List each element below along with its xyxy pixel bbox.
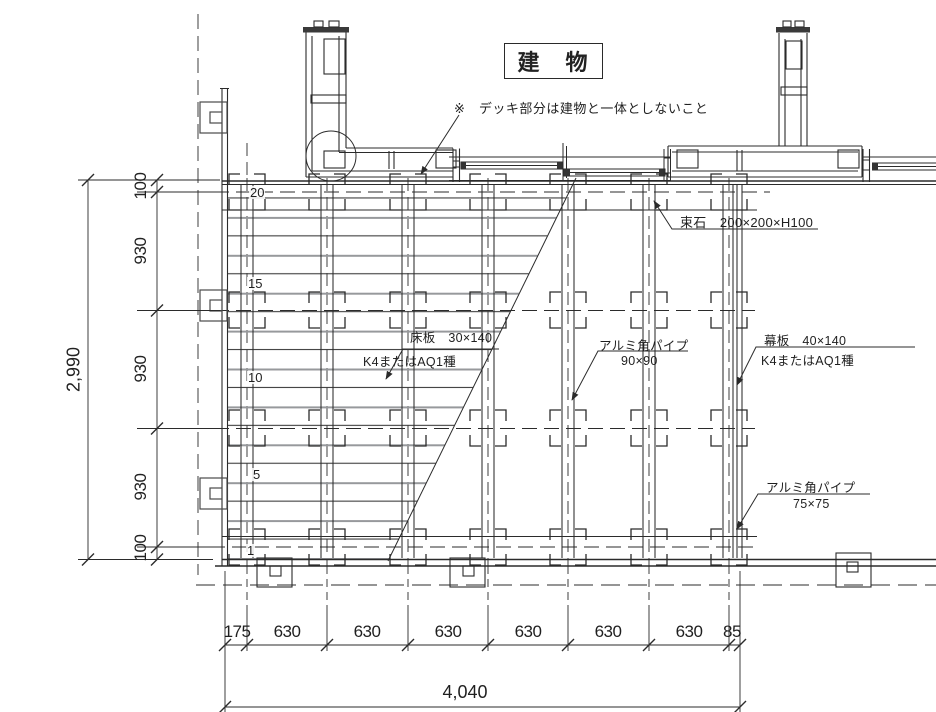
alum-pipe90-label-line1: アルミ角パイプ [599,335,688,354]
floor-board-label-line1: 床板 30×140 [410,327,492,346]
dim-left-100-bottom: 100 [131,513,151,583]
alum-pipe75-label-line1: アルミ角パイプ [766,477,855,496]
foundation-stone-label: 束石 200×200×H100 [680,212,813,231]
dim-bottom-total: 4,040 [405,682,525,703]
dim-bottom-630-2: 630 [339,622,395,642]
left-fascia [220,88,229,566]
fascia-label-line1: 幕板 40×140 [764,330,846,349]
deck-plan-drawing: 建 物 ※ デッキ部分は建物と一体としないこと 束石 200×200×H100 … [0,0,936,712]
dim-left-100-top: 100 [131,151,151,221]
dim-left-930-2: 930 [131,334,151,404]
dim-bottom-630-1: 630 [259,622,315,642]
board-number-15: 15 [247,277,263,290]
board-number-10: 10 [247,371,263,384]
board-number-5: 5 [252,468,261,481]
dim-bottom-630-4: 630 [500,622,556,642]
dim-bottom-630-3: 630 [420,622,476,642]
fascia-right [723,184,742,558]
drawing-title: 建 物 [504,43,603,79]
fascia-label-line2: K4またはAQ1種 [761,350,854,369]
dim-left-930-1: 930 [131,216,151,286]
alum-pipe75-label-line2: 75×75 [793,497,830,511]
dim-left-930-3: 930 [131,452,151,522]
floor-board-label-line2: K4またはAQ1種 [363,351,456,370]
board-number-20: 20 [249,186,265,199]
dim-bottom-630-5: 630 [580,622,636,642]
alum-pipe90-label-line2: 90×90 [621,354,658,368]
dim-bottom-85: 85 [706,622,758,642]
sliding-window [449,143,671,181]
drawing-title-label: 建 物 [517,45,589,77]
detail-circle [306,131,356,181]
board-number-1: 1 [246,544,255,557]
right-window [862,149,936,182]
wall-brackets [200,102,227,509]
dim-bottom-175: 175 [209,622,265,642]
dim-left-total: 2,990 [64,335,85,405]
deck-note: ※ デッキ部分は建物と一体としないこと [454,98,708,117]
